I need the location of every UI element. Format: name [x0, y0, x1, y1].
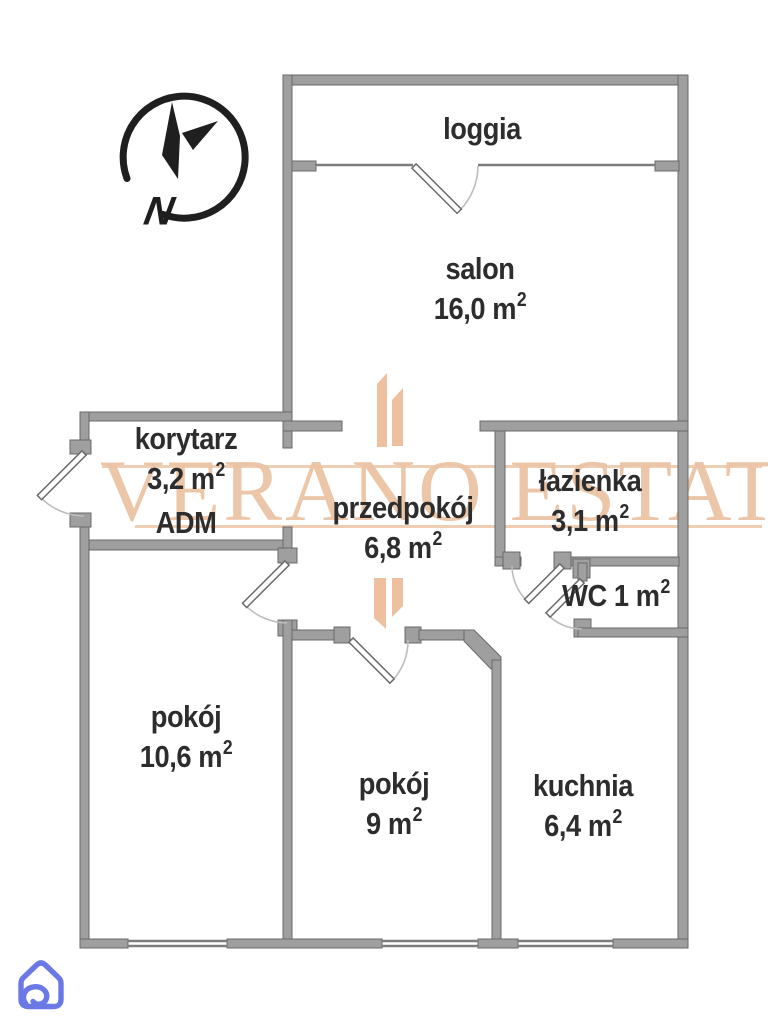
labels-layer: loggia salon 16,0 m2 korytarz 3,2 m2 ADM… — [0, 0, 768, 1023]
room-area-value: 6,4 m — [544, 808, 612, 843]
room-label-korytarz: korytarz 3,2 m2 ADM — [135, 419, 238, 543]
room-label-pokoj-b: pokój 9 m2 — [359, 764, 430, 848]
room-area-value: 3,2 m — [147, 461, 215, 496]
room-name: salon — [434, 249, 527, 289]
room-area: 6,8 m2 — [332, 528, 473, 572]
room-area: 16,0 m2 — [434, 289, 527, 333]
floorplan-canvas: VERANO ESTATE — [0, 0, 768, 1023]
room-area: 10,6 m2 — [140, 737, 233, 781]
room-area-value: 6,8 m — [364, 530, 432, 565]
room-name: kuchnia — [533, 766, 633, 806]
room-area-value: 16,0 m — [434, 291, 516, 326]
room-area-sup: 2 — [223, 737, 232, 759]
room-area: 6,4 m2 — [533, 806, 633, 850]
room-area: 3,2 m2 — [135, 459, 238, 503]
room-name: łazienka — [539, 461, 642, 501]
room-label-kuchnia: kuchnia 6,4 m2 — [533, 766, 633, 850]
room-area-value: WC 1 m — [562, 578, 659, 613]
room-label-salon: salon 16,0 m2 — [434, 249, 527, 333]
room-area-value: 3,1 m — [551, 503, 619, 538]
room-label-wc: WC 1 m2 — [562, 576, 670, 620]
room-area-sup: 2 — [433, 528, 442, 550]
room-label-pokoj-a: pokój 10,6 m2 — [140, 697, 233, 781]
room-label-przedpokoj: przedpokój 6,8 m2 — [332, 488, 473, 572]
room-area-sup: 2 — [517, 289, 526, 311]
room-label-lazienka: łazienka 3,1 m2 — [539, 461, 642, 545]
room-area-sup: 2 — [660, 576, 669, 598]
compass-north-label: N — [141, 190, 178, 235]
room-name: korytarz — [135, 419, 238, 459]
room-label-loggia: loggia — [443, 109, 521, 149]
room-area-value: 9 m — [366, 806, 412, 841]
room-area-value: 10,6 m — [140, 739, 222, 774]
room-area-sup: 2 — [620, 501, 629, 523]
room-area-sup: 2 — [413, 804, 422, 826]
room-area-sup: 2 — [216, 459, 225, 481]
room-name: przedpokój — [332, 488, 473, 528]
room-area: 9 m2 — [359, 804, 430, 848]
room-name: pokój — [359, 764, 430, 804]
room-note: ADM — [135, 503, 238, 543]
room-name: pokój — [140, 697, 233, 737]
room-area: 3,1 m2 — [539, 501, 642, 545]
room-name: WC 1 m2 — [562, 576, 670, 620]
room-name: loggia — [443, 109, 521, 149]
room-area-sup: 2 — [613, 806, 622, 828]
